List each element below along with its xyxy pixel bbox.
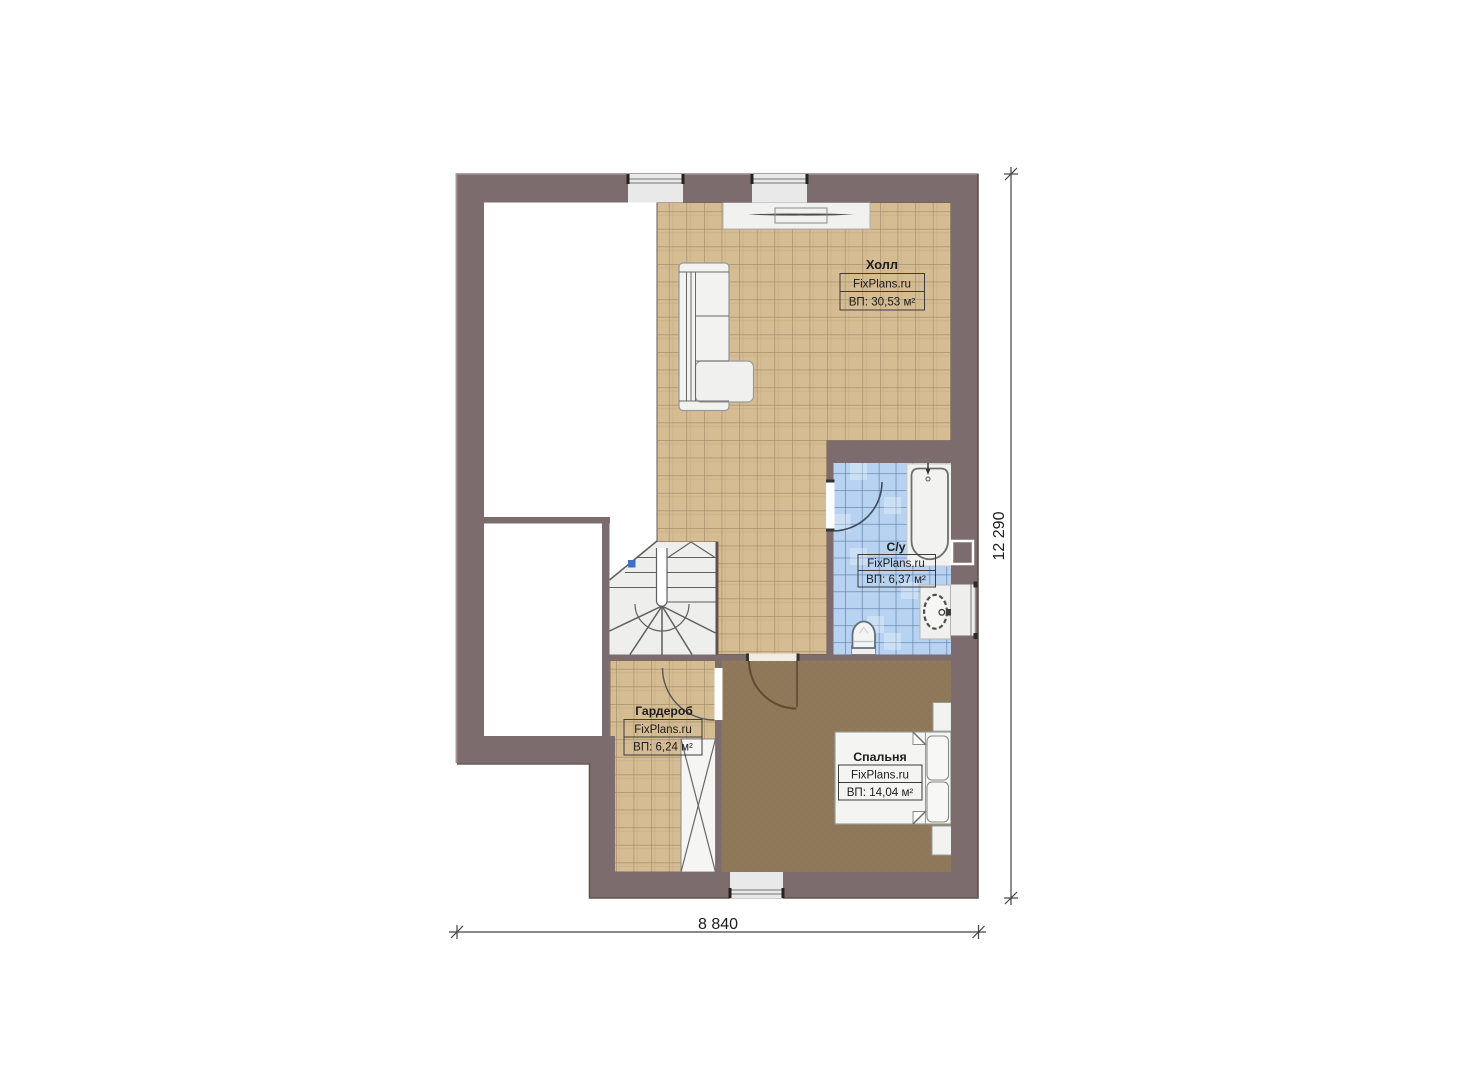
svg-text:12 290: 12 290 — [991, 511, 1008, 560]
svg-text:Спальня: Спальня — [853, 750, 907, 764]
svg-text:FixPlans.ru: FixPlans.ru — [634, 724, 692, 736]
svg-text:FixPlans.ru: FixPlans.ru — [853, 278, 911, 291]
svg-text:Гардероб: Гардероб — [635, 704, 693, 718]
svg-text:8 840: 8 840 — [698, 916, 738, 933]
svg-text:Холл: Холл — [866, 257, 898, 272]
svg-text:ВП: 30,53 м²: ВП: 30,53 м² — [849, 296, 916, 309]
svg-text:ВП: 6,24 м²: ВП: 6,24 м² — [633, 742, 693, 754]
svg-text:ВП: 6,37 м²: ВП: 6,37 м² — [866, 574, 926, 586]
svg-text:FixPlans.ru: FixPlans.ru — [851, 769, 909, 782]
svg-text:FixPlans.ru: FixPlans.ru — [867, 558, 925, 570]
svg-text:С/у: С/у — [887, 540, 906, 554]
svg-text:ВП: 14,04 м²: ВП: 14,04 м² — [847, 786, 914, 799]
